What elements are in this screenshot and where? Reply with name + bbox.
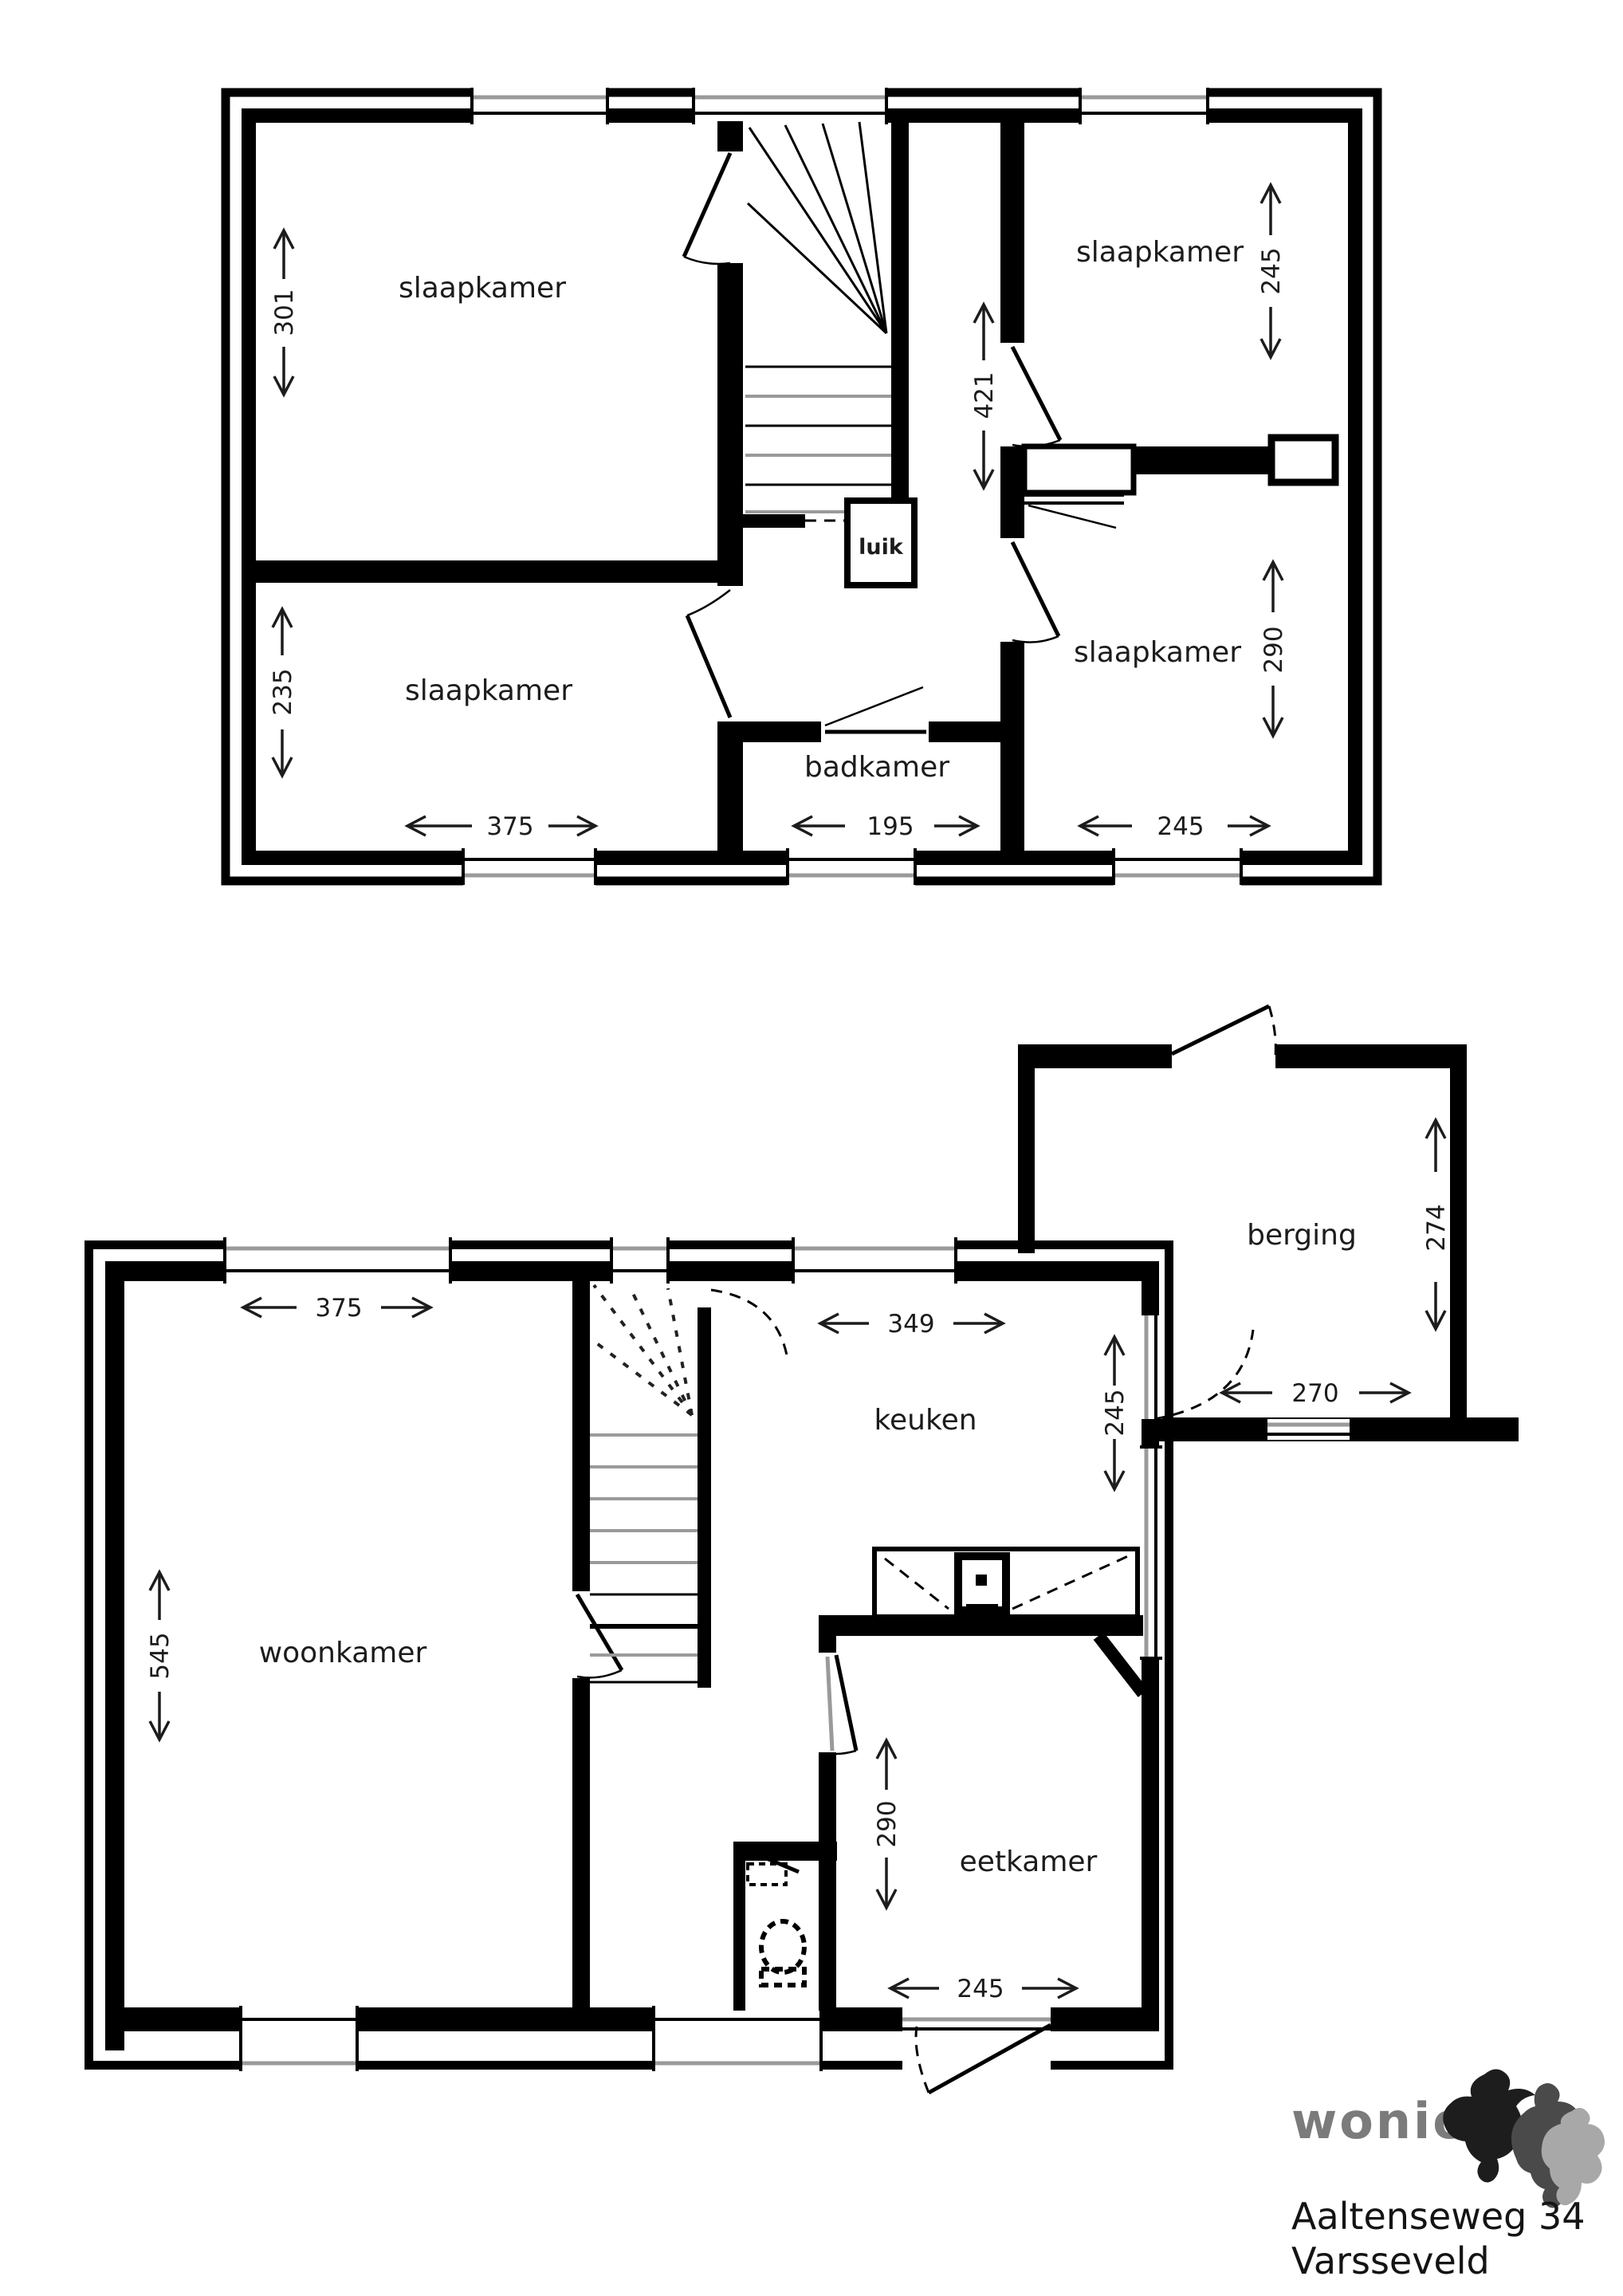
dim-349: 349 [820, 1310, 1003, 1339]
upper-outer-walls [226, 92, 1377, 881]
kitchen-label: keuken [874, 1404, 977, 1437]
bedroom-top-left-label: slaapkamer [399, 272, 566, 305]
dining-room-label: eetkamer [960, 1846, 1098, 1878]
dim-235-value: 235 [269, 668, 297, 715]
dim-290-dining: 290 [873, 1740, 902, 1908]
dim-290-bottom-right: 290 [1259, 562, 1288, 736]
upper-bottom-windows [463, 847, 1241, 887]
dim-245-bottom-right-value: 245 [1157, 812, 1204, 841]
floorplan-drawing: luik slaapkamer slaapkamer slaapkamer sl… [0, 0, 1623, 2296]
bedroom-top-right-label: slaapkamer [1076, 236, 1244, 269]
dim-245-dining-value: 245 [957, 1975, 1004, 2003]
bedroom-bottom-left-label: slaapkamer [405, 674, 572, 707]
dim-421: 421 [970, 305, 999, 488]
dim-375-upper: 375 [407, 812, 595, 841]
dim-245-kitchen-value: 245 [1101, 1389, 1130, 1436]
dim-274-value: 274 [1422, 1204, 1451, 1251]
dim-301-value: 301 [270, 289, 299, 336]
dim-375-ground: 375 [243, 1294, 430, 1323]
dim-270: 270 [1222, 1379, 1409, 1408]
dim-245-dining: 245 [890, 1975, 1076, 2003]
dim-274: 274 [1422, 1120, 1451, 1329]
address-line2: Varsseveld [1291, 2239, 1490, 2282]
dim-349-value: 349 [887, 1310, 934, 1339]
dim-290-dining-value: 290 [873, 1800, 902, 1847]
dim-195-value: 195 [867, 812, 914, 841]
hatch-label: luik [859, 535, 904, 560]
upper-floor-plan: luik slaapkamer slaapkamer slaapkamer sl… [226, 86, 1377, 887]
address-line1: Aaltenseweg 34 [1291, 2195, 1585, 2238]
dim-195: 195 [794, 812, 977, 841]
toilet-fixtures [748, 1864, 804, 1985]
dim-421-value: 421 [970, 372, 999, 419]
dim-545-value: 545 [146, 1632, 175, 1679]
dim-245-top-right-value: 245 [1257, 247, 1286, 294]
ground-interior-walls [572, 1280, 1143, 2011]
storage-label: berging [1247, 1219, 1357, 1252]
bedroom-bottom-right-label: slaapkamer [1074, 636, 1241, 669]
ground-doors [577, 1290, 856, 1872]
ground-floor-plan: woonkamer keuken eetkamer berging 375 54… [84, 1006, 1519, 2093]
dim-375-upper-value: 375 [486, 812, 533, 841]
upper-interior-walls [254, 121, 1335, 852]
dim-375-ground-value: 375 [315, 1294, 362, 1323]
dim-245-kitchen: 245 [1101, 1337, 1130, 1489]
dim-235: 235 [269, 609, 297, 776]
entry-door [902, 2004, 1051, 2093]
dim-301: 301 [270, 230, 299, 395]
dim-290-bottom-right-value: 290 [1259, 626, 1288, 673]
upper-hatch-box: luik [847, 501, 914, 585]
back-door [1138, 1315, 1253, 1419]
dim-270-value: 270 [1291, 1379, 1338, 1408]
living-room-label: woonkamer [259, 1637, 427, 1669]
ground-stairs [590, 1285, 698, 1682]
dim-545: 545 [146, 1572, 175, 1740]
wonion-figures-icon [1443, 2069, 1605, 2208]
footer: wonion Aaltenseweg 34 Varsseveld [1291, 2069, 1605, 2282]
upper-top-windows [472, 86, 1208, 126]
bathroom-label: badkamer [804, 751, 949, 784]
upper-stairs [745, 122, 891, 512]
kitchen-counter [874, 1549, 1138, 1617]
dim-245-top-right: 245 [1257, 185, 1286, 357]
dim-245-bottom-right: 245 [1080, 812, 1268, 841]
